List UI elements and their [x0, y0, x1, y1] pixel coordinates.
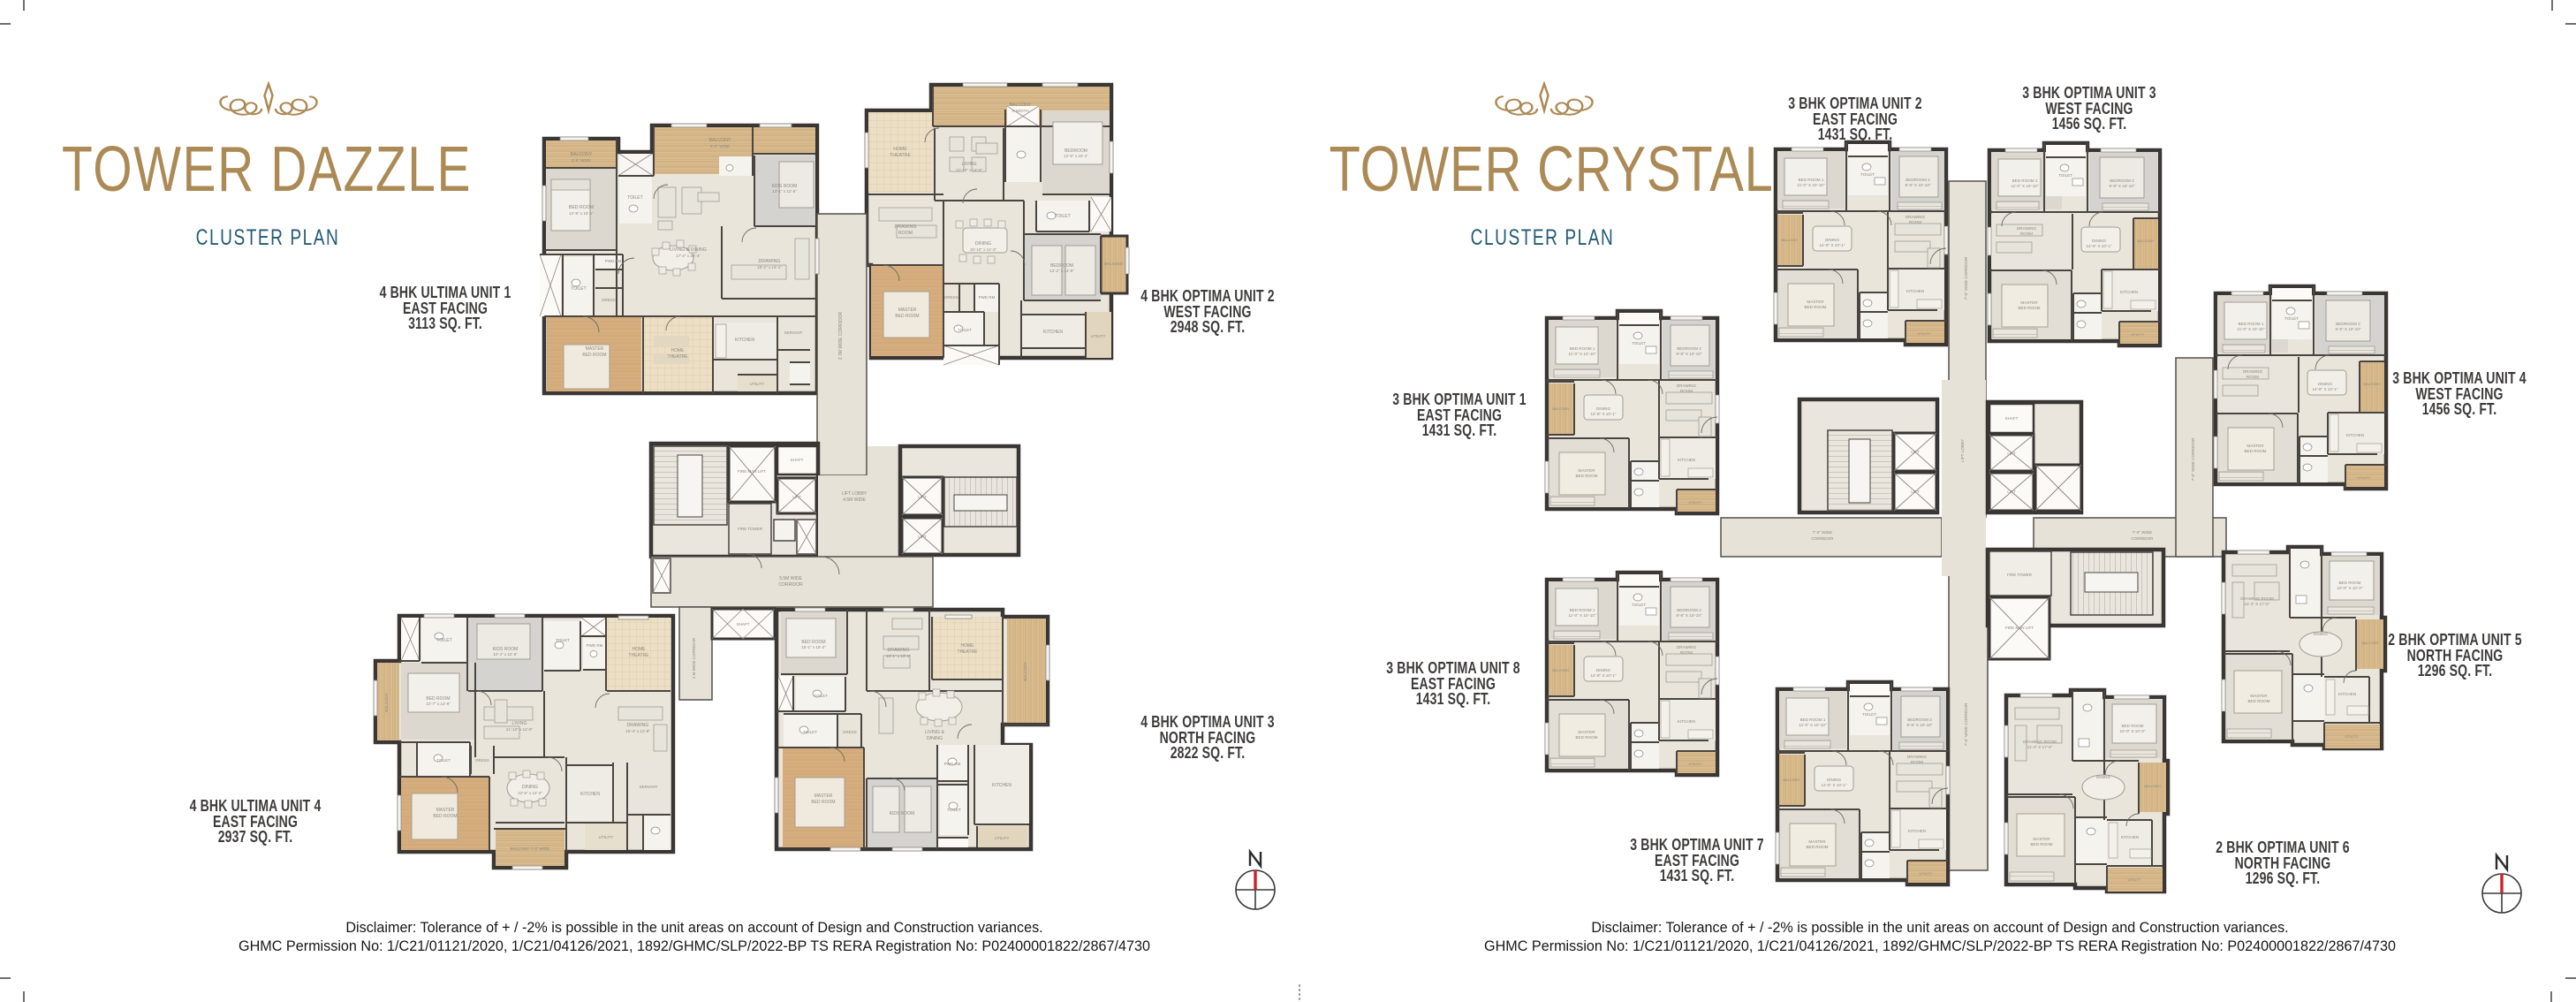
- svg-text:BALCONY: BALCONY: [709, 138, 731, 143]
- svg-text:SERVANT: SERVANT: [640, 785, 658, 789]
- svg-text:DRAWING: DRAWING: [895, 224, 917, 230]
- svg-text:THEATRE: THEATRE: [629, 653, 650, 658]
- svg-text:7'-0" WIDE: 7'-0" WIDE: [2133, 530, 2152, 535]
- svg-text:9'-0" WIDE: 9'-0" WIDE: [710, 144, 730, 148]
- svg-text:TOILET: TOILET: [436, 638, 451, 643]
- svg-text:FIRE TOWER: FIRE TOWER: [738, 527, 763, 531]
- svg-text:17'-2" x 25'-4": 17'-2" x 25'-4": [676, 254, 701, 258]
- svg-text:BALCONY: BALCONY: [384, 693, 389, 712]
- svg-text:LIFT: LIFT: [2007, 490, 2016, 494]
- svg-text:13'-1" x 12'-6": 13'-1" x 12'-6": [772, 189, 797, 194]
- svg-text:LIFT LOBBY: LIFT LOBBY: [842, 491, 868, 497]
- svg-text:12'-8" x 15'-1": 12'-8" x 15'-1": [569, 211, 594, 216]
- svg-text:DRAWING: DRAWING: [627, 723, 649, 728]
- svg-text:TOILET: TOILET: [958, 328, 972, 332]
- svg-text:SERVANT: SERVANT: [784, 330, 803, 335]
- svg-text:15'-1" x 13'-1": 15'-1" x 13'-1": [886, 654, 911, 658]
- svg-text:ROOM: ROOM: [898, 231, 913, 236]
- svg-text:BED ROOM: BED ROOM: [433, 814, 457, 819]
- svg-text:12'-7" x 14'-9": 12'-7" x 14'-9": [426, 702, 451, 706]
- svg-text:MASTER: MASTER: [436, 808, 455, 813]
- svg-text:SHAFT: SHAFT: [737, 622, 750, 626]
- svg-text:LIFT LOBBY: LIFT LOBBY: [1960, 439, 1965, 462]
- svg-text:12'-10" x 14'-6": 12'-10" x 14'-6": [956, 168, 983, 172]
- svg-text:KIDS ROOM: KIDS ROOM: [890, 811, 915, 816]
- svg-text:PWD RM: PWD RM: [979, 295, 996, 300]
- svg-text:9' WIDTH: 9' WIDTH: [1011, 109, 1028, 113]
- svg-text:MASTER: MASTER: [586, 346, 604, 352]
- svg-text:15'-4" x 12'-8": 15'-4" x 12'-8": [625, 729, 650, 733]
- svg-text:SHAFT: SHAFT: [2005, 416, 2019, 421]
- svg-text:15'-10" x 14'-3": 15'-10" x 14'-3": [970, 247, 997, 252]
- svg-text:LIVING: LIVING: [961, 162, 976, 167]
- svg-text:DRAWING: DRAWING: [759, 259, 781, 264]
- svg-text:TOILET: TOILET: [556, 638, 570, 642]
- svg-text:12'-4" x 12'-6": 12'-4" x 12'-6": [493, 652, 518, 657]
- svg-text:UTILITY: UTILITY: [599, 835, 614, 839]
- svg-text:BED ROOM: BED ROOM: [582, 353, 606, 358]
- svg-text:12'-6" x 12'-3": 12'-6" x 12'-3": [518, 791, 542, 795]
- svg-text:LIFT: LIFT: [918, 495, 927, 499]
- svg-text:BALCONY: BALCONY: [1010, 102, 1032, 108]
- svg-text:DRESS: DRESS: [944, 295, 958, 300]
- svg-text:5'-6" WIDE: 5'-6" WIDE: [572, 158, 591, 163]
- svg-text:DRAWING: DRAWING: [888, 648, 910, 653]
- svg-text:KITCHEN: KITCHEN: [1043, 330, 1063, 335]
- svg-text:LIFT: LIFT: [1911, 450, 1920, 454]
- svg-text:HOME: HOME: [893, 147, 907, 152]
- svg-text:LIVING &: LIVING &: [925, 730, 944, 735]
- svg-text:13'-2" x 14'-9": 13'-2" x 14'-9": [1049, 269, 1074, 273]
- svg-text:BALCONY: BALCONY: [571, 152, 593, 157]
- svg-text:16'-2" x 13'-1": 16'-2" x 13'-1": [757, 265, 782, 269]
- svg-text:7'-0" WIDE CORRIDOR: 7'-0" WIDE CORRIDOR: [1964, 256, 1968, 300]
- svg-text:UTILITY: UTILITY: [750, 382, 765, 386]
- svg-text:KITCHEN: KITCHEN: [735, 338, 754, 343]
- svg-text:DRESS: DRESS: [843, 730, 857, 734]
- svg-text:LIFT: LIFT: [792, 495, 801, 499]
- svg-text:4.5M WIDE: 4.5M WIDE: [843, 497, 866, 503]
- svg-text:7'-0" WIDE: 7'-0" WIDE: [1813, 530, 1832, 535]
- svg-text:THEATRE: THEATRE: [668, 354, 689, 360]
- svg-text:CORRIDOR: CORRIDOR: [778, 582, 803, 588]
- svg-text:TOILET: TOILET: [436, 758, 451, 763]
- svg-text:HOME: HOME: [633, 647, 647, 652]
- svg-text:BALCONY: BALCONY: [1104, 262, 1124, 266]
- svg-text:FIRE TOWER: FIRE TOWER: [2007, 573, 2033, 577]
- svg-text:KITCHEN: KITCHEN: [992, 783, 1011, 788]
- svg-text:BED ROOM: BED ROOM: [811, 800, 835, 805]
- svg-text:TOILET: TOILET: [1055, 214, 1070, 219]
- svg-text:HOME: HOME: [671, 348, 686, 353]
- svg-text:THEATRE: THEATRE: [958, 649, 979, 655]
- svg-text:UTILITY: UTILITY: [995, 836, 1010, 840]
- svg-text:UTILITY: UTILITY: [1091, 334, 1106, 338]
- svg-text:7'-0" WIDE CORRIDOR: 7'-0" WIDE CORRIDOR: [1964, 702, 1968, 746]
- svg-text:12'-6" x 15'-1": 12'-6" x 15'-1": [1064, 154, 1088, 158]
- svg-text:BALCONY: BALCONY: [1023, 662, 1027, 681]
- svg-text:HOME: HOME: [961, 643, 975, 649]
- svg-text:MASTER: MASTER: [814, 793, 833, 799]
- svg-text:TOILET: TOILET: [814, 694, 828, 698]
- svg-text:DINING: DINING: [975, 241, 991, 247]
- svg-text:LIVING: LIVING: [511, 721, 527, 726]
- svg-text:PWD RM: PWD RM: [605, 259, 622, 263]
- svg-text:LIFT: LIFT: [2007, 452, 2016, 456]
- svg-text:TOILET: TOILET: [803, 730, 817, 734]
- svg-text:7'-0" WIDE CORRIDOR: 7'-0" WIDE CORRIDOR: [2191, 437, 2195, 481]
- svg-text:FIRE MAN LIFT: FIRE MAN LIFT: [738, 469, 766, 474]
- svg-text:DINING: DINING: [927, 736, 943, 741]
- svg-text:PWD RM: PWD RM: [944, 762, 961, 766]
- svg-text:21'-10" x 12'-9": 21'-10" x 12'-9": [506, 727, 534, 732]
- svg-text:LIFT: LIFT: [1911, 490, 1920, 494]
- svg-text:CORRIDOR: CORRIDOR: [2131, 536, 2154, 541]
- svg-text:TOILET: TOILET: [627, 195, 642, 201]
- svg-text:TOILET: TOILET: [571, 286, 586, 292]
- svg-text:BALCONY 7'-3" WIDE: BALCONY 7'-3" WIDE: [511, 846, 550, 851]
- svg-text:DRESS: DRESS: [602, 298, 616, 302]
- svg-text:MASTER: MASTER: [898, 307, 917, 313]
- svg-text:BED ROOM: BED ROOM: [895, 314, 919, 319]
- svg-text:LIFT: LIFT: [918, 535, 927, 539]
- svg-text:CORRIDOR: CORRIDOR: [1811, 536, 1834, 541]
- svg-text:THEATRE: THEATRE: [890, 153, 911, 158]
- svg-text:DINING: DINING: [522, 785, 538, 790]
- svg-text:SHAFT: SHAFT: [791, 458, 804, 462]
- svg-text:DRESS: DRESS: [475, 758, 489, 763]
- svg-text:TOILET: TOILET: [947, 808, 961, 812]
- svg-text:2.7M WIDE CORRIDOR: 2.7M WIDE CORRIDOR: [838, 312, 844, 361]
- svg-text:BED ROOM: BED ROOM: [569, 205, 594, 210]
- svg-text:15'-1" x 15'-2": 15'-1" x 15'-2": [801, 645, 826, 649]
- svg-text:PWD RM: PWD RM: [587, 643, 603, 648]
- svg-text:KITCHEN: KITCHEN: [580, 792, 600, 797]
- svg-text:FIRE MAN LIFT: FIRE MAN LIFT: [2005, 626, 2034, 630]
- svg-text:5.5M WIDE: 5.5M WIDE: [779, 576, 802, 581]
- svg-text:LIVING & DINING: LIVING & DINING: [670, 247, 707, 253]
- svg-text:2 M WIDE CORRIDOR: 2 M WIDE CORRIDOR: [692, 637, 696, 679]
